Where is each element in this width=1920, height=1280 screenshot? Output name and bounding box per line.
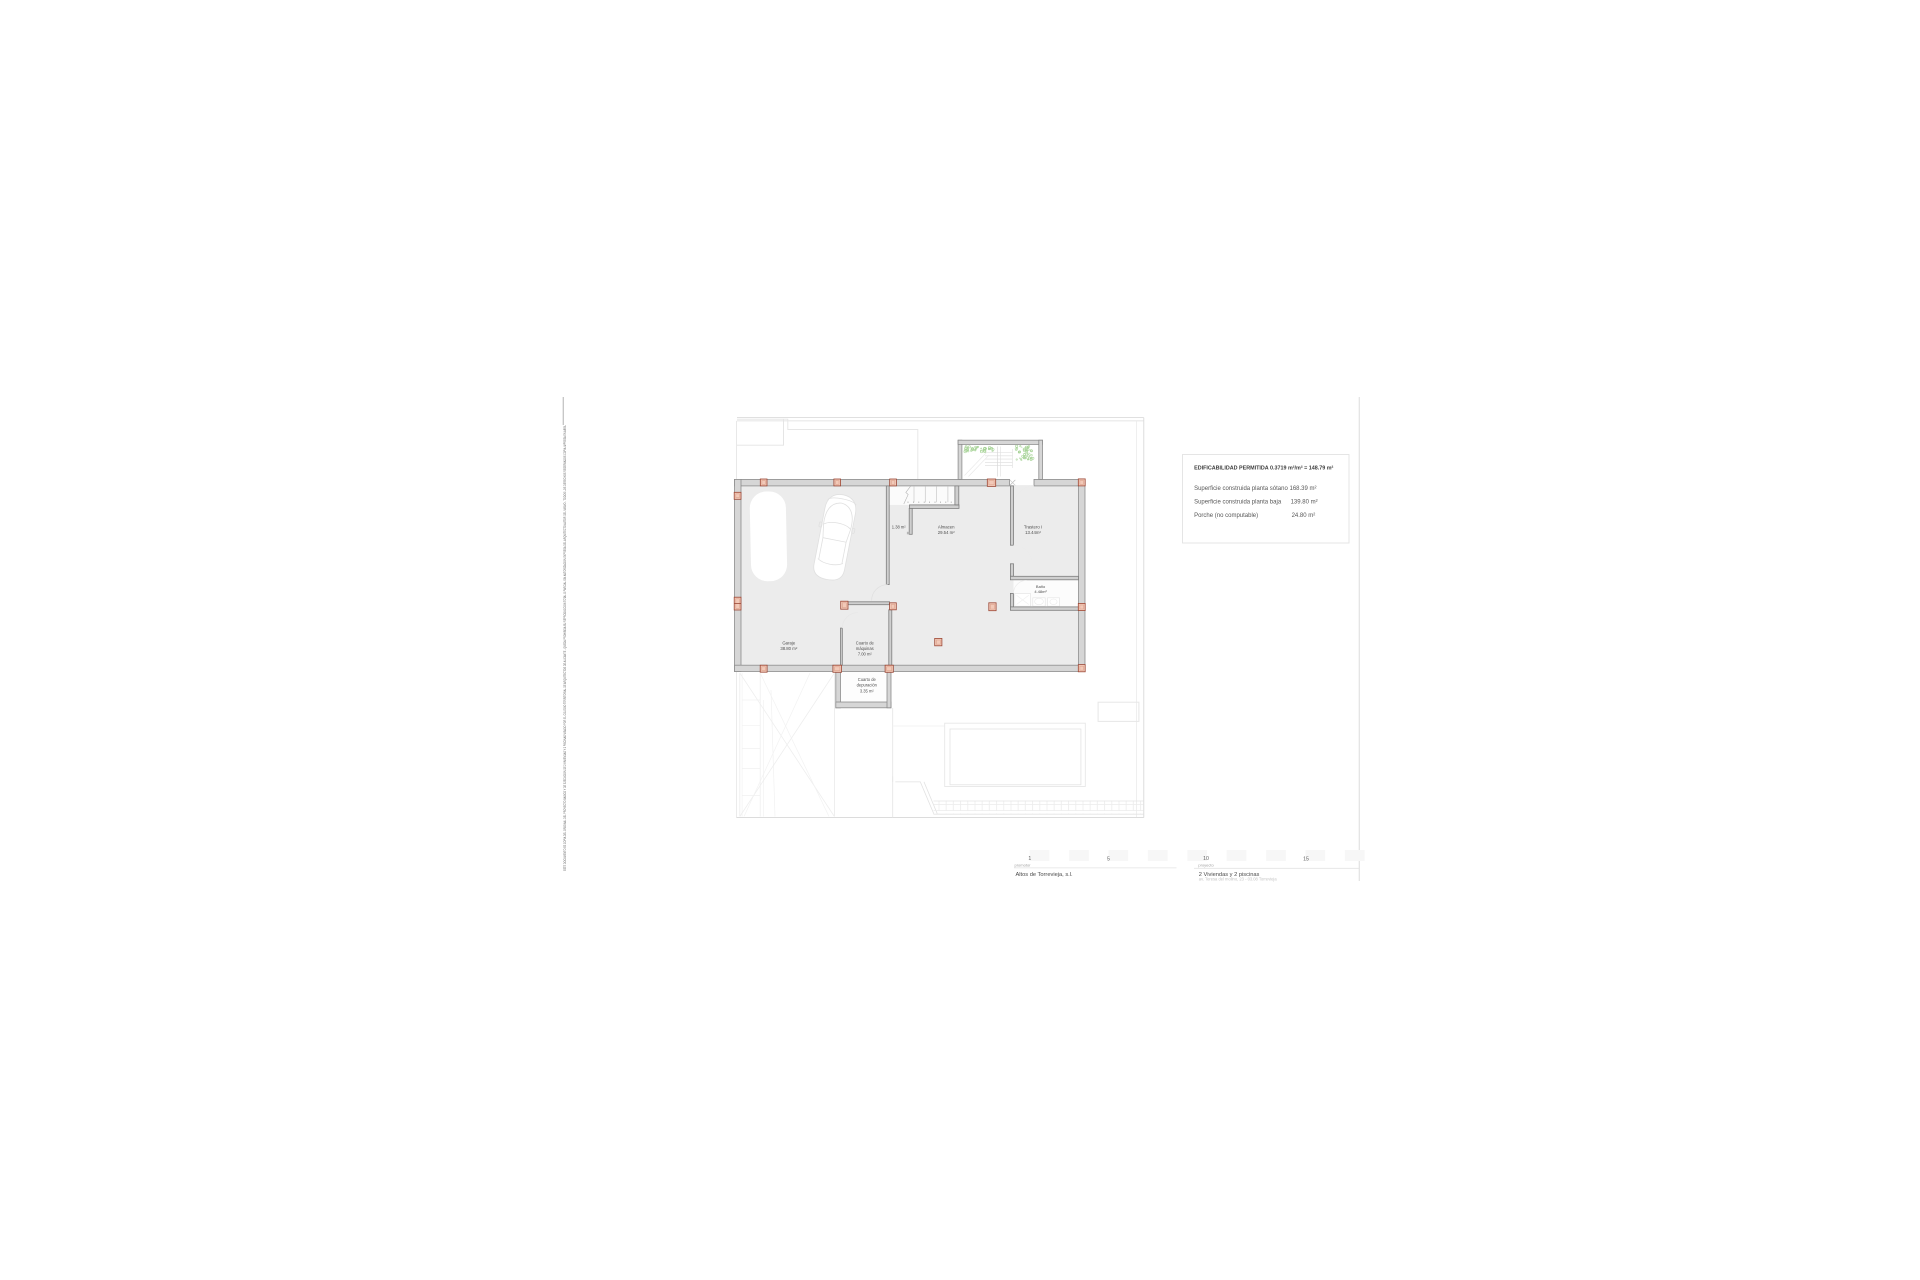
- svg-text:Almacen: Almacen: [938, 525, 955, 530]
- svg-text:Trastero I: Trastero I: [1024, 525, 1042, 530]
- svg-text:3.35 m²: 3.35 m²: [860, 688, 875, 693]
- svg-text:1: 1: [1028, 856, 1031, 862]
- svg-text:av. Teresa del molino, 23 - 03: av. Teresa del molino, 23 - 03.08 Torrev…: [1199, 877, 1278, 882]
- svg-text:Porche (no computable): Porche (no computable): [1194, 513, 1258, 519]
- svg-text:139.80 m²: 139.80 m²: [1291, 499, 1318, 505]
- svg-text:ESTE DOCUMENTO ES COPIA DEL OR: ESTE DOCUMENTO ES COPIA DEL ORIGINAL DEL…: [563, 425, 567, 871]
- svg-text:Altos de Torrevieja, s.l.: Altos de Torrevieja, s.l.: [1016, 872, 1074, 878]
- svg-text:Superficie construida planta b: Superficie construida planta baja: [1194, 499, 1282, 505]
- svg-text:38.80 m²: 38.80 m²: [780, 646, 798, 651]
- svg-text:1.38 m²: 1.38 m²: [892, 525, 907, 530]
- svg-text:Cuarto de: Cuarto de: [856, 640, 875, 645]
- svg-text:10: 10: [1203, 856, 1209, 862]
- svg-text:7.00 m²: 7.00 m²: [858, 652, 873, 657]
- svg-text:promotor: promotor: [1015, 863, 1032, 868]
- svg-text:EDIFICABILIDAD PERMITIDA 0.371: EDIFICABILIDAD PERMITIDA 0.3719 m²/m² = …: [1194, 465, 1333, 471]
- svg-text:13.44m²: 13.44m²: [1025, 530, 1041, 535]
- svg-text:Superficie construida planta s: Superficie construida planta sótano 168.…: [1194, 486, 1316, 492]
- svg-text:5: 5: [1107, 856, 1110, 862]
- svg-text:29.54 m²: 29.54 m²: [938, 530, 956, 535]
- svg-text:proyecto: proyecto: [1198, 863, 1214, 868]
- svg-text:4.48m²: 4.48m²: [1034, 589, 1047, 594]
- svg-text:Cuarto de: Cuarto de: [858, 677, 877, 682]
- svg-text:máquinas: máquinas: [856, 646, 874, 651]
- svg-text:15: 15: [1303, 856, 1309, 862]
- svg-text:depuración: depuración: [857, 683, 878, 688]
- svg-text:Garaje: Garaje: [782, 641, 796, 646]
- svg-text:24.80 m²: 24.80 m²: [1292, 513, 1316, 519]
